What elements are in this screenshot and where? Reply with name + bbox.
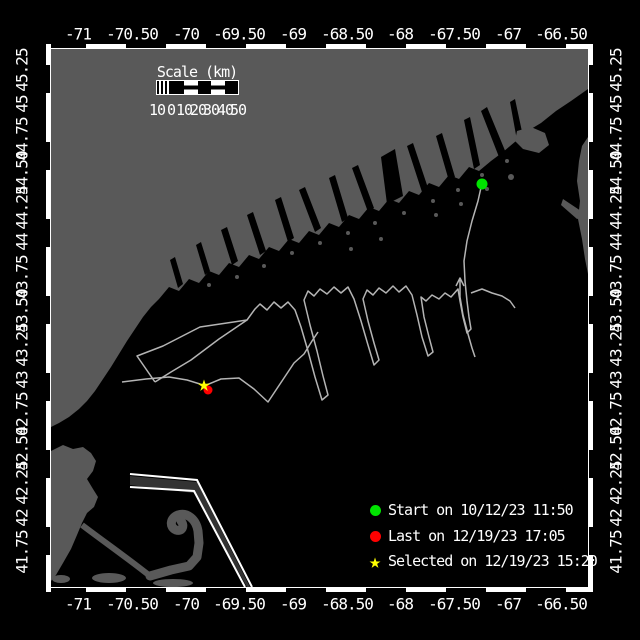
selected-position-marker[interactable]: ★ (197, 374, 210, 396)
lon-tick-label: -70.50 (106, 25, 158, 44)
lat-tick-label: 45 (607, 95, 626, 112)
lon-tick-label: -70 (173, 595, 199, 614)
lat-tick-label: 43 (607, 371, 626, 388)
legend-row: Last on 12/19/23 17:05 (362, 528, 565, 544)
legend-row: Start on 10/12/23 11:50 (362, 502, 573, 518)
lat-tick-label: 44 (607, 233, 626, 250)
scale-tick-label: 0 (167, 101, 175, 119)
legend-row: ★Selected on 12/19/23 15:20 (362, 553, 597, 569)
legend-label: Last on 12/19/23 17:05 (388, 527, 565, 545)
lat-tick-label: 45.25 (607, 48, 626, 91)
lat-tick-label: 42.25 (607, 461, 626, 504)
lon-tick-label: -71 (65, 595, 91, 614)
scale-segment (171, 81, 185, 94)
legend-dot (370, 505, 381, 516)
legend-dot (370, 531, 381, 542)
drifter-track-map-screen: Scale (km) 1001020304050 -71-70.50-70-69… (0, 0, 640, 640)
lat-tick-label: 44.25 (13, 186, 32, 229)
scale-segment (184, 81, 198, 94)
scale-tick-label: 50 (230, 101, 246, 119)
lon-tick-label: -70.50 (106, 595, 158, 614)
lon-tick-label: -69.50 (213, 595, 265, 614)
lon-tick-label: -67 (495, 595, 521, 614)
lat-tick-label: 42 (607, 509, 626, 526)
lon-tick-label: -69 (280, 595, 306, 614)
scale-segment (225, 81, 239, 94)
lat-tick-label: 44.25 (607, 186, 626, 229)
scale-bar (156, 80, 239, 95)
legend-star: ★ (369, 554, 381, 568)
legend-label: Selected on 12/19/23 15:20 (388, 552, 597, 570)
lon-tick-label: -70 (173, 25, 199, 44)
lat-tick-label: 42.25 (13, 461, 32, 504)
start-position-marker[interactable] (477, 179, 488, 190)
lon-tick-label: -68 (387, 595, 413, 614)
lat-tick-label: 41.75 (607, 530, 626, 573)
lon-tick-label: -66.50 (535, 25, 587, 44)
star-icon: ★ (362, 554, 388, 568)
dot-icon (362, 505, 388, 516)
scale-segment (198, 81, 212, 94)
lon-tick-label: -67.50 (428, 25, 480, 44)
map-frame-bottom (46, 587, 593, 592)
scale-bar-title: Scale (km) (157, 63, 237, 81)
lat-tick-label: 45.25 (13, 48, 32, 91)
lat-tick-label: 42 (13, 509, 32, 526)
lon-tick-label: -69.50 (213, 25, 265, 44)
legend-label: Start on 10/12/23 11:50 (388, 501, 573, 519)
lon-tick-label: -68.50 (321, 595, 373, 614)
dot-icon (362, 531, 388, 542)
lat-tick-label: 45 (13, 95, 32, 112)
lat-tick-label: 41.75 (13, 530, 32, 573)
lat-tick-label: 44 (13, 233, 32, 250)
scale-segment (211, 81, 225, 94)
lon-tick-label: -66.50 (535, 595, 587, 614)
lon-tick-label: -68 (387, 25, 413, 44)
lon-tick-label: -68.50 (321, 25, 373, 44)
lat-tick-label: 43 (13, 371, 32, 388)
lon-tick-label: -69 (280, 25, 306, 44)
scale-tick-label: 10 (149, 101, 165, 119)
lon-tick-label: -67.50 (428, 595, 480, 614)
lat-tick-label: 43.25 (13, 323, 32, 366)
lat-tick-label: 43.25 (607, 323, 626, 366)
scale-segment-hatched (157, 81, 171, 94)
map-frame-right (588, 44, 593, 592)
lon-tick-label: -71 (65, 25, 91, 44)
lon-tick-label: -67 (495, 25, 521, 44)
